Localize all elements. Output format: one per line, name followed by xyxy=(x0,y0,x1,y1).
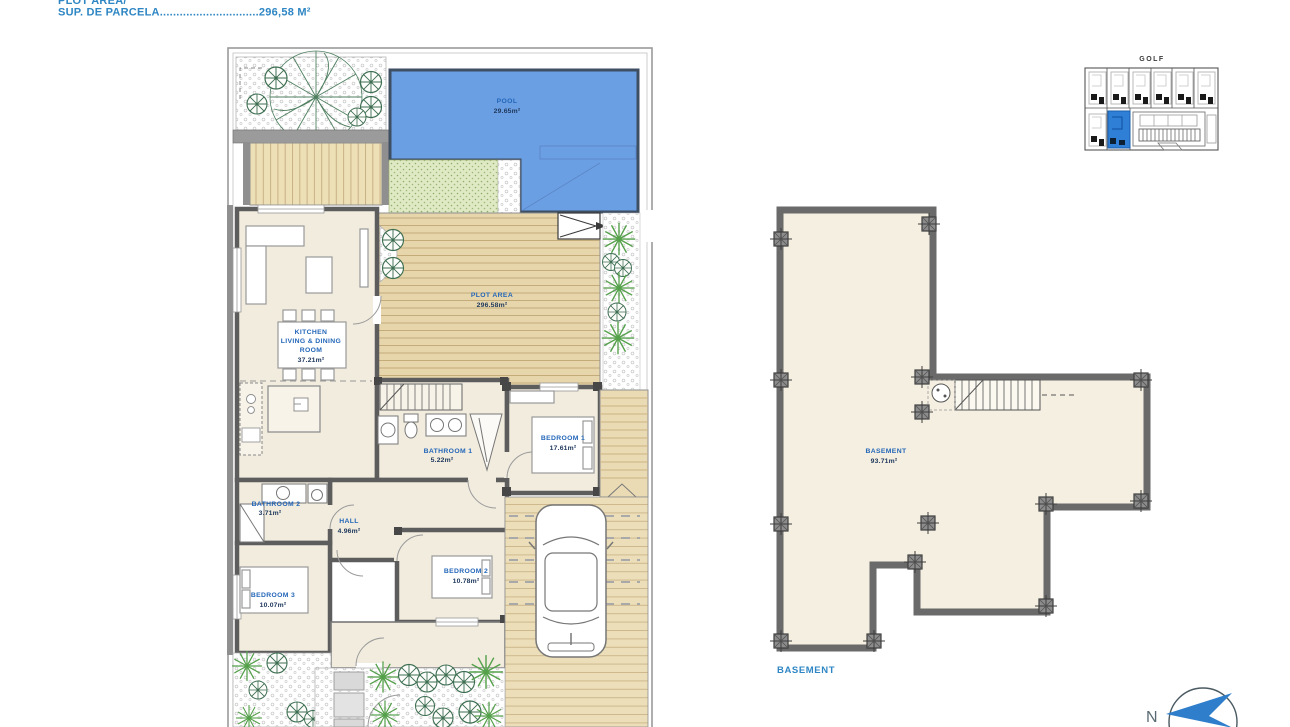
basement-plan: BASEMENT 93.71m² BASEMENT xyxy=(770,210,1152,676)
kitchen-area-value: 37.21m² xyxy=(298,357,325,364)
bathroom2-area-value: 3.71m² xyxy=(259,510,282,517)
wood-deck-top xyxy=(233,130,390,205)
tree-icon xyxy=(417,672,437,692)
north-label: N xyxy=(1146,709,1158,726)
highlighted-unit xyxy=(1108,111,1130,148)
tv-unit xyxy=(360,229,368,287)
tree-icon xyxy=(267,653,287,673)
porch xyxy=(331,622,505,668)
hall-area-value: 4.96m² xyxy=(338,528,361,535)
bathroom1-label: BATHROOM 1 xyxy=(424,448,473,455)
site-location-map: GOLF xyxy=(1085,56,1218,150)
basement-label: BASEMENT xyxy=(866,448,907,455)
stairs xyxy=(380,384,462,410)
floorplan-canvas: PLOT AREA/ SUP. DE PARCELA..............… xyxy=(0,0,1290,727)
tree-icon xyxy=(249,681,267,699)
bedroom1-area-value: 17.61m² xyxy=(550,445,577,452)
compass-arrow-icon xyxy=(1166,693,1233,727)
dining-chair xyxy=(283,369,296,380)
side-steps xyxy=(600,390,648,497)
sofa xyxy=(246,246,266,304)
tree-icon xyxy=(247,94,267,114)
tree-icon xyxy=(608,303,626,321)
sofa xyxy=(246,226,304,246)
garden-strip-right xyxy=(602,213,640,390)
pool-label: POOL xyxy=(497,98,518,105)
tree-icon xyxy=(454,672,475,693)
tree-icon xyxy=(416,697,435,716)
tree-icon xyxy=(348,108,366,126)
kitchen-counter xyxy=(240,383,262,455)
tree-icon xyxy=(459,701,481,723)
bedroom3-area-value: 10.07m² xyxy=(260,602,287,609)
terrace-plot-area-label: PLOT AREA xyxy=(471,292,513,299)
dining-chair xyxy=(321,369,334,380)
toilet xyxy=(404,414,418,422)
tree-icon xyxy=(287,702,307,722)
utility-box xyxy=(334,693,364,717)
kitchen-label-2: LIVING & DINING xyxy=(281,338,341,345)
tree-icon xyxy=(383,258,404,279)
dining-chair xyxy=(302,369,315,380)
hall-label: HALL xyxy=(339,518,359,525)
tree-icon xyxy=(433,708,453,727)
terrace-plot-area-value: 296.58m² xyxy=(477,302,508,309)
garden-top xyxy=(236,51,386,143)
dining-chair xyxy=(302,310,315,321)
basement-caption: BASEMENT xyxy=(777,665,835,676)
title-block: PLOT AREA/ SUP. DE PARCELA..............… xyxy=(58,0,311,19)
bedroom2-area-value: 10.78m² xyxy=(453,578,480,585)
clubhouse xyxy=(1133,112,1216,150)
basement-area-value: 93.71m² xyxy=(871,458,898,465)
tree-icon xyxy=(383,230,404,251)
pool-area-value: 29.65m² xyxy=(494,108,521,115)
north-arrow: N xyxy=(1146,688,1237,727)
bedroom2-label: BEDROOM 2 xyxy=(444,568,488,575)
tree-icon xyxy=(615,260,632,277)
dining-chair xyxy=(321,310,334,321)
utility-box xyxy=(334,719,364,727)
kitchen-label-1: KITCHEN xyxy=(295,329,328,336)
tree-icon xyxy=(361,72,382,93)
utility-box xyxy=(334,672,364,690)
floorplan-page: PLOT AREA/ SUP. DE PARCELA..............… xyxy=(0,0,1290,727)
bathroom1-area-value: 5.22m² xyxy=(431,457,454,464)
plot-area-title-line2: SUP. DE PARCELA.........................… xyxy=(58,7,311,19)
bathroom2-label: BATHROOM 2 xyxy=(252,501,301,508)
basement-outline xyxy=(780,210,1147,648)
bedroom3-label: BEDROOM 3 xyxy=(251,592,295,599)
water-heater xyxy=(932,384,950,402)
kitchen-label-3: ROOM xyxy=(300,347,323,354)
ground-floor-plan: POOL 29.65m² PLOT AREA 296.58m² xyxy=(227,48,653,727)
tree-icon xyxy=(265,67,287,89)
coffee-table xyxy=(306,257,332,293)
lawn xyxy=(389,160,520,213)
driveway xyxy=(505,497,648,727)
golf-label: GOLF xyxy=(1139,56,1164,63)
closet xyxy=(510,391,554,403)
tree-icon xyxy=(399,665,420,686)
bedroom1-label: BEDROOM 1 xyxy=(541,435,585,442)
car-icon xyxy=(529,505,613,657)
dining-chair xyxy=(283,310,296,321)
